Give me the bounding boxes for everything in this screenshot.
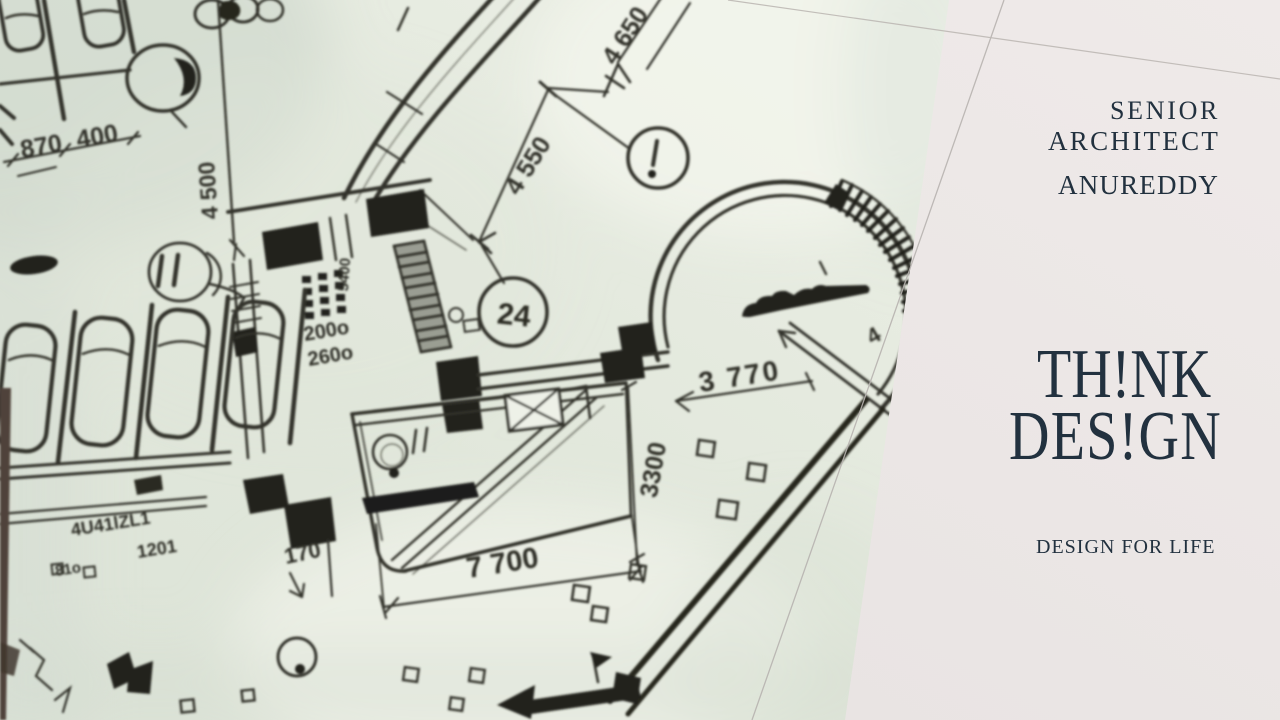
svg-text:5400: 5400 xyxy=(335,257,354,291)
svg-text:4 500: 4 500 xyxy=(193,161,223,220)
svg-text:24: 24 xyxy=(496,297,533,333)
